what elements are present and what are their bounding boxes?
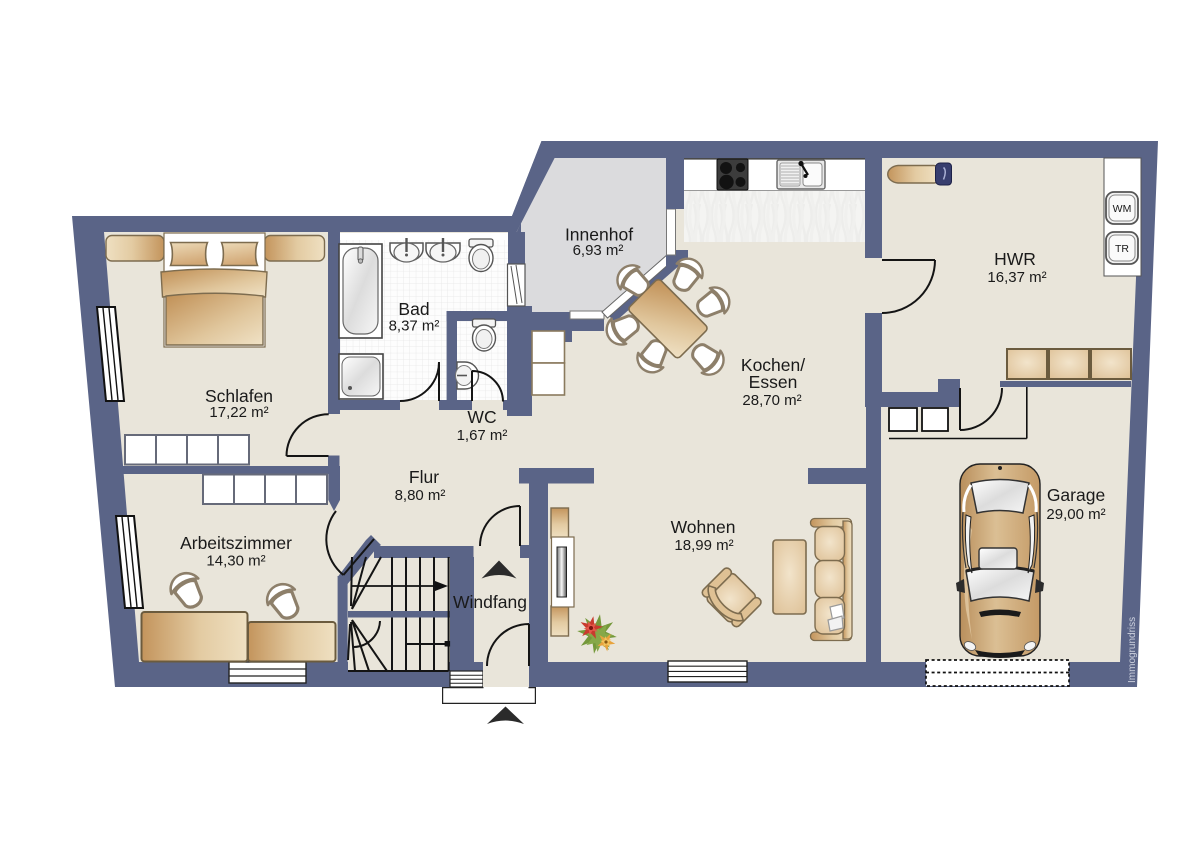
svg-text:17,22 m²: 17,22 m² — [209, 404, 268, 421]
svg-text:HWR: HWR — [994, 249, 1036, 269]
svg-text:TR: TR — [1115, 243, 1129, 255]
svg-text:8,37 m²: 8,37 m² — [389, 318, 440, 335]
svg-text:WC: WC — [467, 407, 496, 427]
svg-text:Flur: Flur — [409, 467, 439, 487]
svg-text:Essen: Essen — [749, 372, 798, 392]
svg-text:8,80 m²: 8,80 m² — [395, 487, 446, 504]
svg-text:Wohnen: Wohnen — [671, 517, 736, 537]
svg-text:WM: WM — [1113, 203, 1132, 215]
svg-text:Schlafen: Schlafen — [205, 386, 273, 406]
svg-text:18,99 m²: 18,99 m² — [674, 537, 733, 554]
svg-text:1,67 m²: 1,67 m² — [457, 427, 508, 444]
svg-text:Immogrundriss: Immogrundriss — [1127, 617, 1138, 683]
svg-text:Arbeitszimmer: Arbeitszimmer — [180, 533, 292, 553]
svg-text:16,37 m²: 16,37 m² — [987, 269, 1046, 286]
svg-text:Garage: Garage — [1047, 485, 1105, 505]
svg-text:29,00 m²: 29,00 m² — [1046, 506, 1105, 523]
svg-text:14,30 m²: 14,30 m² — [206, 553, 265, 570]
svg-text:Bad: Bad — [398, 299, 429, 319]
svg-text:28,70 m²: 28,70 m² — [742, 392, 801, 409]
svg-text:Windfang: Windfang — [453, 592, 527, 612]
svg-text:6,93 m²: 6,93 m² — [573, 242, 624, 259]
